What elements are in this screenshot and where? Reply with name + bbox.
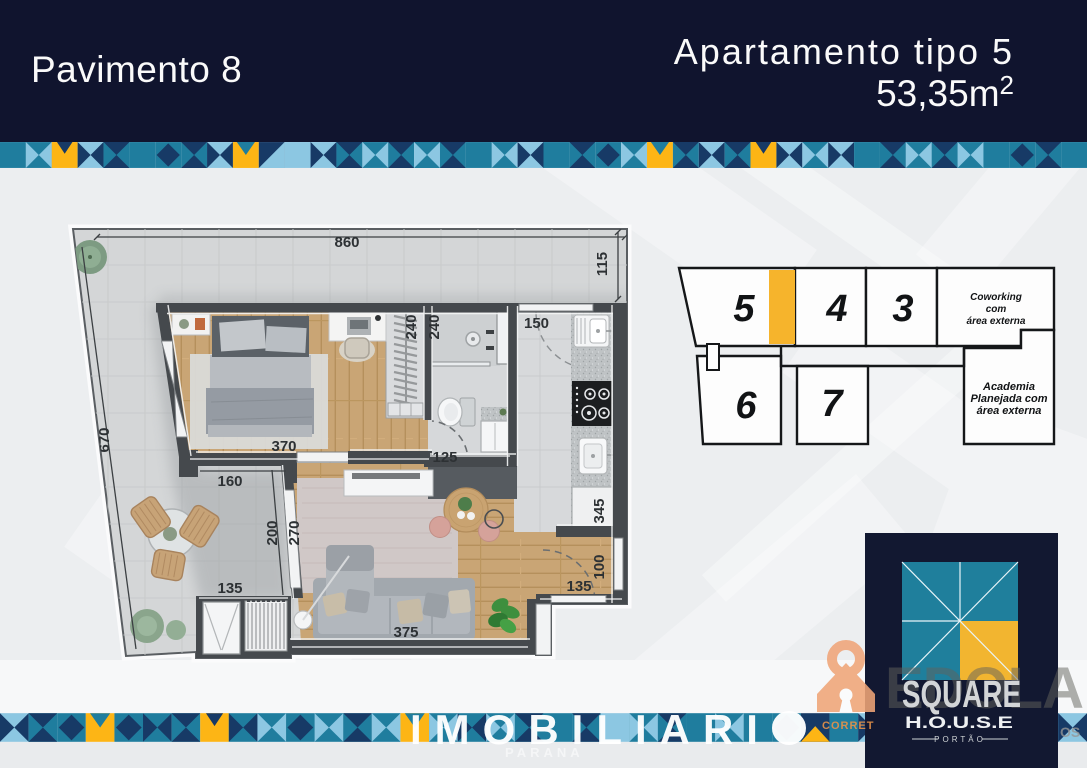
- svg-text:375: 375: [393, 624, 418, 641]
- svg-text:860: 860: [334, 234, 359, 251]
- svg-text:OS: OS: [1060, 724, 1080, 740]
- svg-text:115: 115: [594, 252, 611, 276]
- svg-text:345: 345: [591, 498, 608, 523]
- svg-text:PORTÃO: PORTÃO: [934, 735, 986, 744]
- svg-text:200: 200: [264, 520, 281, 545]
- svg-text:Academia: Academia: [982, 381, 1035, 393]
- svg-text:7: 7: [821, 383, 844, 425]
- svg-text:5: 5: [733, 288, 755, 330]
- svg-text:área externa: área externa: [977, 405, 1042, 417]
- svg-text:240: 240: [403, 314, 420, 339]
- svg-text:160: 160: [217, 473, 242, 490]
- svg-text:125: 125: [432, 449, 457, 466]
- svg-text:270: 270: [286, 520, 303, 545]
- svg-text:com: com: [986, 304, 1007, 315]
- svg-text:150: 150: [524, 315, 549, 332]
- svg-text:135: 135: [566, 578, 591, 595]
- svg-text:6: 6: [735, 385, 757, 427]
- svg-text:Planejada com: Planejada com: [970, 393, 1047, 405]
- svg-text:3: 3: [892, 288, 913, 330]
- svg-text:SQUARE: SQUARE: [902, 674, 1021, 716]
- svg-text:135: 135: [217, 580, 242, 597]
- svg-text:240: 240: [426, 314, 443, 339]
- svg-text:Coworking: Coworking: [970, 292, 1022, 303]
- svg-text:100: 100: [591, 554, 608, 579]
- svg-text:H.O.U.S.E: H.O.U.S.E: [905, 713, 1013, 732]
- svg-text:370: 370: [271, 438, 296, 455]
- svg-text:4: 4: [825, 288, 847, 330]
- svg-text:CORRET: CORRET: [822, 720, 874, 732]
- svg-text:área externa: área externa: [967, 316, 1026, 327]
